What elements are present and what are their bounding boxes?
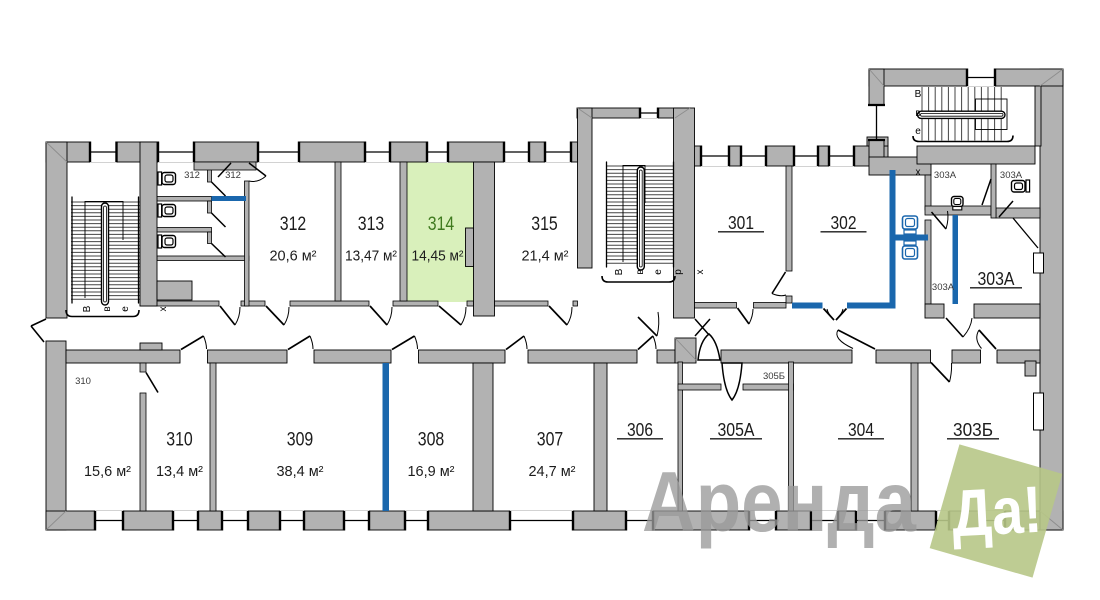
svg-text:301: 301 — [728, 213, 754, 233]
svg-text:312: 312 — [280, 214, 307, 235]
svg-text:303Б: 303Б — [953, 420, 993, 440]
svg-text:в: в — [102, 306, 113, 311]
svg-text:306: 306 — [627, 420, 653, 440]
svg-text:315: 315 — [531, 214, 558, 235]
svg-text:303А: 303А — [978, 269, 1015, 289]
svg-text:308: 308 — [418, 430, 445, 451]
svg-text:х: х — [158, 307, 169, 312]
svg-text:16,9 м²: 16,9 м² — [407, 464, 454, 480]
svg-text:х: х — [695, 270, 706, 275]
svg-text:13,4 м²: 13,4 м² — [156, 464, 203, 480]
svg-text:е: е — [915, 126, 921, 137]
svg-text:В: В — [915, 89, 922, 100]
svg-text:14,45 м²: 14,45 м² — [412, 249, 464, 265]
svg-text:310: 310 — [75, 376, 91, 387]
svg-text:303А: 303А — [932, 282, 955, 293]
svg-text:303А: 303А — [934, 170, 957, 181]
svg-text:313: 313 — [358, 214, 385, 235]
svg-text:21,4 м²: 21,4 м² — [521, 249, 568, 265]
svg-text:Да!: Да! — [950, 472, 1044, 551]
svg-text:в: в — [635, 269, 646, 274]
svg-text:15,6 м²: 15,6 м² — [84, 464, 131, 480]
svg-text:310: 310 — [166, 430, 193, 451]
svg-text:305А: 305А — [718, 420, 755, 440]
svg-text:В: В — [82, 305, 93, 312]
svg-text:314: 314 — [428, 214, 455, 235]
svg-text:24,7 м²: 24,7 м² — [528, 464, 575, 480]
svg-text:303А: 303А — [1000, 170, 1023, 181]
svg-text:е: е — [653, 269, 664, 275]
svg-text:312: 312 — [225, 170, 241, 181]
svg-text:в: в — [915, 108, 920, 119]
svg-text:13,47 м²: 13,47 м² — [345, 249, 397, 265]
svg-text:Аренда: Аренда — [642, 455, 917, 550]
svg-text:312: 312 — [184, 170, 200, 181]
svg-text:е: е — [120, 306, 131, 312]
svg-text:38,4 м²: 38,4 м² — [276, 464, 323, 480]
svg-text:304: 304 — [848, 420, 874, 440]
svg-text:307: 307 — [537, 430, 564, 451]
svg-text:20,6 м²: 20,6 м² — [269, 249, 316, 265]
svg-text:302: 302 — [831, 213, 857, 233]
svg-text:В: В — [614, 268, 625, 275]
svg-text:х: х — [916, 167, 921, 178]
svg-text:р: р — [673, 269, 684, 275]
svg-text:305Б: 305Б — [763, 371, 785, 382]
svg-text:309: 309 — [287, 430, 314, 451]
